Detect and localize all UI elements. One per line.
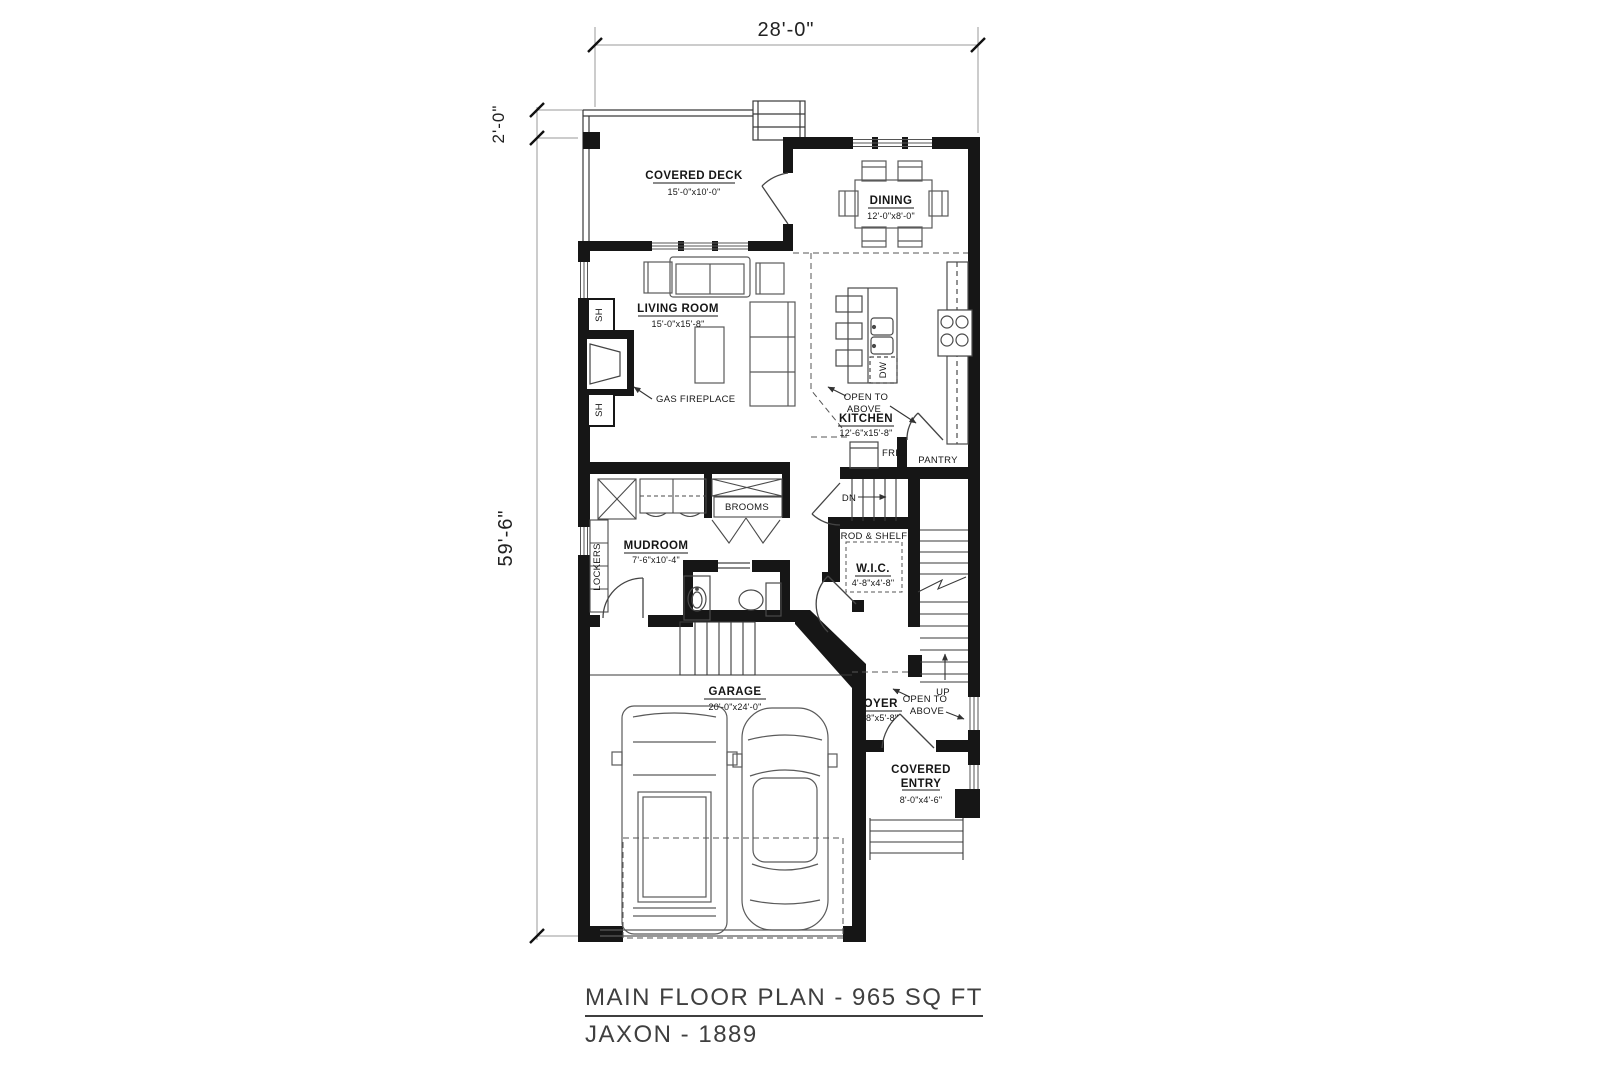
size-mudroom: 7'-6"x10'-4" [632, 555, 680, 565]
size-foyer: 7'-8"x5'-8" [856, 713, 899, 723]
labels: 28'-0" 2'-0" 59'-6" COVERED DECK 15'-0"x… [489, 19, 958, 805]
label-mudroom: MUDROOM [624, 540, 689, 552]
label-open-to-kitchen: OPEN TO [844, 392, 889, 403]
dim-width-label: 28'-0" [758, 19, 815, 41]
label-gas-fireplace: GAS FIREPLACE [656, 394, 735, 405]
size-dining: 12'-0"x8'-0" [867, 211, 915, 221]
label-foyer: FOYER [856, 698, 898, 710]
plan-subtitle: JAXON - 1889 [585, 1021, 983, 1049]
label-living-room: LIVING ROOM [637, 303, 719, 315]
size-covered-deck: 15'-0"x10'-0" [668, 187, 721, 197]
label-shelf-top: SH [594, 308, 605, 322]
label-rod-shelf: ROD & SHELF [841, 531, 908, 542]
label-pantry: PANTRY [918, 455, 958, 466]
label-above-kitchen: ABOVE [847, 404, 881, 415]
label-dining: DINING [870, 195, 913, 207]
label-dn: DN [842, 493, 856, 504]
dim-deck-offset-label: 2'-0" [489, 105, 508, 144]
size-living-room: 15'-0"x15'-8" [652, 319, 705, 329]
dim-depth-label: 59'-6" [495, 510, 517, 567]
label-covered-entry-1: COVERED [891, 764, 951, 776]
doors [603, 173, 943, 748]
plan-title: MAIN FLOOR PLAN - 965 SQ FT [585, 984, 983, 1017]
size-garage: 20'-0"x24'-0" [709, 702, 762, 712]
label-garage: GARAGE [709, 686, 762, 698]
fireplace [586, 299, 628, 426]
label-shelf-bottom: SH [594, 403, 605, 417]
label-covered-entry-2: ENTRY [901, 778, 942, 790]
floor-plan-page: 28'-0" 2'-0" 59'-6" COVERED DECK 15'-0"x… [0, 0, 1600, 1067]
size-covered-entry: 8'-0"x4'-6" [900, 795, 943, 805]
label-fridge: FRIG [882, 448, 906, 459]
living-furniture [644, 257, 795, 406]
label-lockers: LOCKERS [592, 543, 603, 591]
title-block: MAIN FLOOR PLAN - 965 SQ FT JAXON - 1889 [585, 984, 983, 1049]
cars [600, 706, 843, 936]
label-dishwasher: DW [878, 362, 889, 378]
label-above-foyer: ABOVE [910, 706, 944, 717]
label-brooms: BROOMS [725, 502, 769, 513]
size-wic: 4'-8"x4'-8" [852, 578, 895, 588]
label-covered-deck: COVERED DECK [645, 170, 743, 182]
label-up: UP [936, 687, 950, 698]
floor-plan-drawing: 28'-0" 2'-0" 59'-6" COVERED DECK 15'-0"x… [0, 0, 1600, 1067]
size-kitchen: 12'-6"x15'-8" [840, 428, 893, 438]
label-wic: W.I.C. [856, 563, 890, 575]
